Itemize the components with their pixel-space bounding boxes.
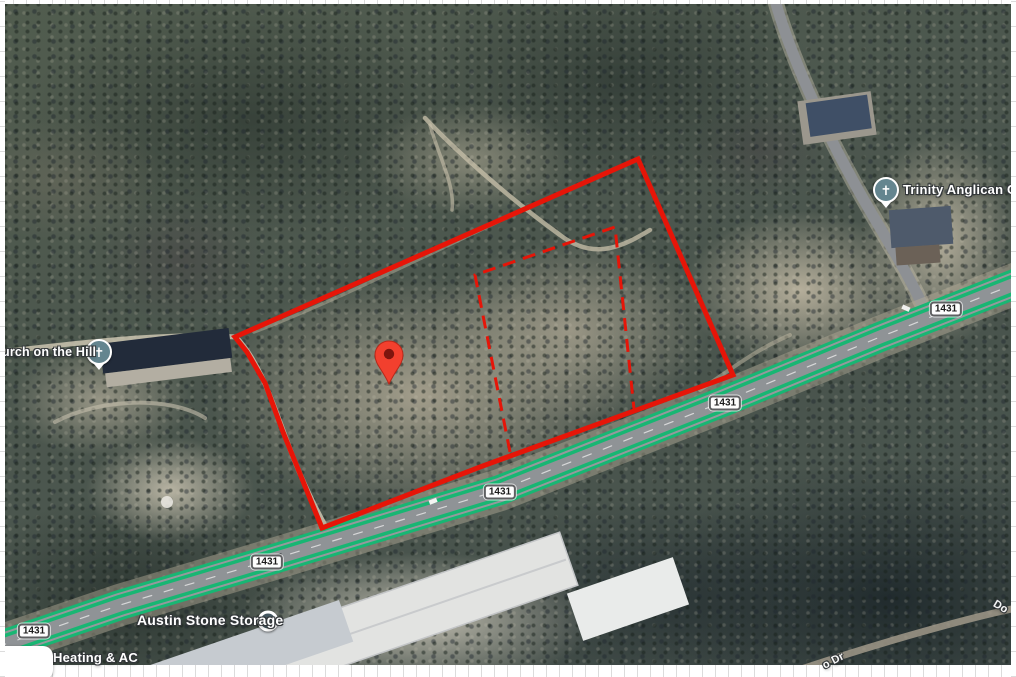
map-screenshot: ✝ ✝ Trinity Anglican Chur urch on the Hi… — [0, 0, 1016, 677]
frame-left — [0, 0, 5, 677]
church-icon[interactable]: ✝ — [873, 177, 899, 203]
parcel-boundary-solid[interactable] — [235, 159, 733, 528]
frame-bottom — [0, 665, 1016, 677]
frame-top — [0, 0, 1016, 4]
poi-label-trinity-church[interactable]: Trinity Anglican Chur — [903, 182, 1016, 197]
route-shield-1431: 1431 — [18, 624, 50, 639]
cross-glyph: ✝ — [881, 184, 892, 197]
route-shield-1431: 1431 — [930, 302, 962, 317]
route-shield-1431: 1431 — [709, 396, 741, 411]
route-shield-1431: 1431 — [251, 555, 283, 570]
route-shield-1431: 1431 — [484, 485, 516, 500]
poi-label-austin-stone-storage[interactable]: Austin Stone Storage — [137, 612, 283, 628]
storage-warehouses — [135, 532, 689, 665]
location-pin[interactable] — [375, 341, 403, 386]
trinity-church-building — [889, 206, 953, 248]
poi-label-heating-ac[interactable]: Heating & AC — [53, 650, 138, 665]
map-vector-overlay — [0, 0, 1016, 665]
frame-right — [1011, 0, 1016, 677]
partial-info-card — [0, 646, 53, 677]
poi-label-church-on-hill[interactable]: urch on the Hill — [2, 345, 96, 359]
